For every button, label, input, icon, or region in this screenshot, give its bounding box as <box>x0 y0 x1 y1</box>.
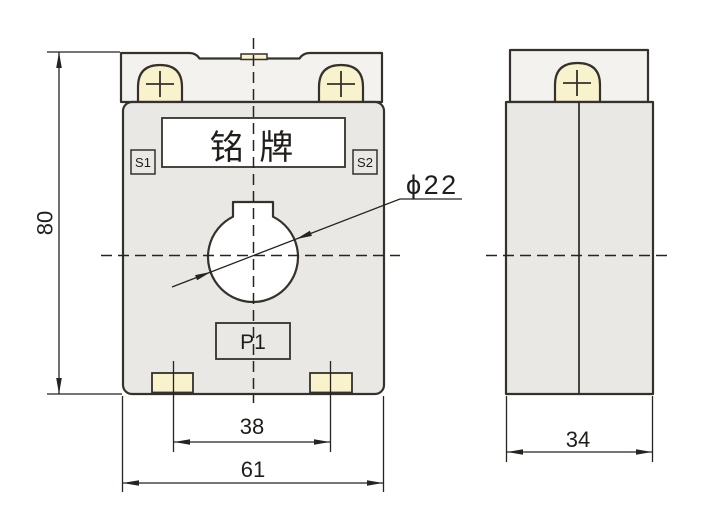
dim-width-label: 61 <box>241 457 265 482</box>
arrowhead-down-icon <box>56 378 62 394</box>
s1-label: S1 <box>135 155 151 170</box>
arrowhead-right-icon <box>314 439 330 445</box>
dim-height-label: 80 <box>33 211 58 235</box>
ct-dimension-drawing: 铭 牌 S1 S2 P1 80 <box>0 0 724 526</box>
side-view <box>486 50 668 394</box>
dim-depth-label: 34 <box>566 427 590 452</box>
dim-spacing-label: 38 <box>240 414 264 439</box>
arrowhead-right-icon <box>636 449 652 455</box>
arrowhead-left-icon <box>174 439 190 445</box>
front-view: 铭 牌 S1 S2 P1 <box>101 38 400 403</box>
dimension-height-80: 80 <box>33 52 123 394</box>
arrowhead-left-icon <box>123 480 139 486</box>
mounting-foot-left <box>152 373 193 393</box>
arrowhead-left-icon <box>507 449 523 455</box>
dimension-width-61: 61 <box>123 396 384 492</box>
dimension-depth-34: 34 <box>507 396 653 462</box>
arrowhead-right-icon <box>367 480 383 486</box>
dim-aperture-label: ϕ22 <box>406 170 459 200</box>
technical-drawing-canvas: 铭 牌 S1 S2 P1 80 <box>0 0 724 526</box>
arrowhead-up-icon <box>56 52 62 68</box>
s2-label: S2 <box>357 155 373 170</box>
